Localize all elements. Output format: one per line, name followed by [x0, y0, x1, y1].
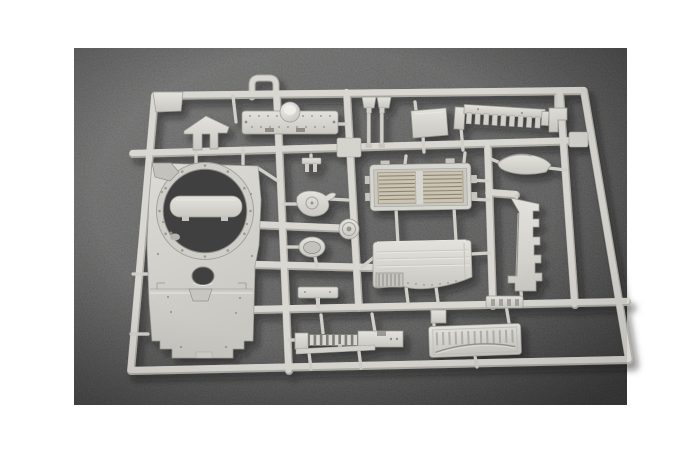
photo-area — [74, 48, 629, 405]
page — [0, 0, 700, 466]
photo-vignette-overlay — [74, 48, 627, 405]
product-photo — [0, 0, 700, 466]
